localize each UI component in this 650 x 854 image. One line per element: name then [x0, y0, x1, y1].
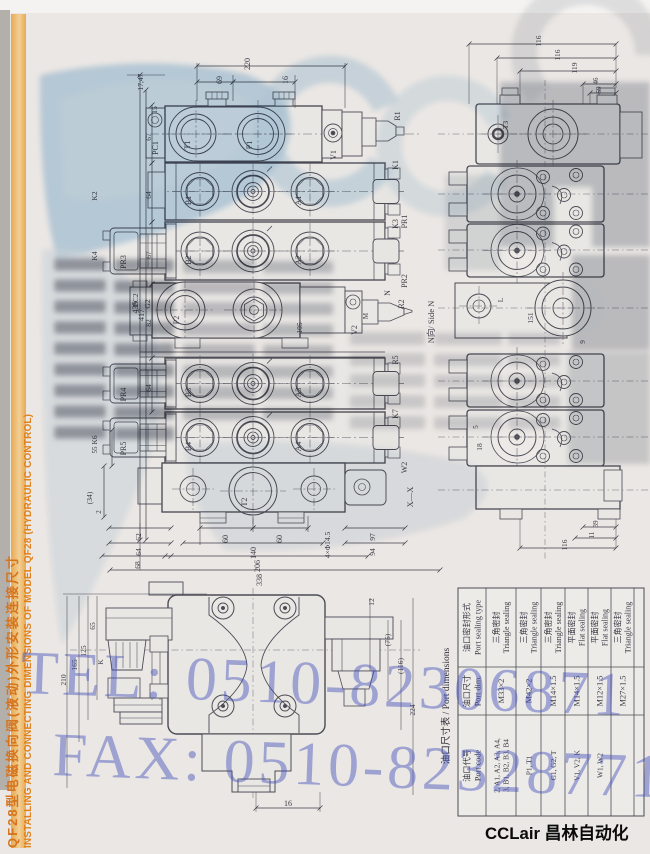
svg-text:INSTALLING AND CONNECTING DIME: INSTALLING AND CONNECTING DIMENSIONS OF …: [23, 414, 34, 848]
svg-text:QF28型电磁换向阀(液动)外形安装连接尺寸: QF28型电磁换向阀(液动)外形安装连接尺寸: [5, 556, 20, 848]
